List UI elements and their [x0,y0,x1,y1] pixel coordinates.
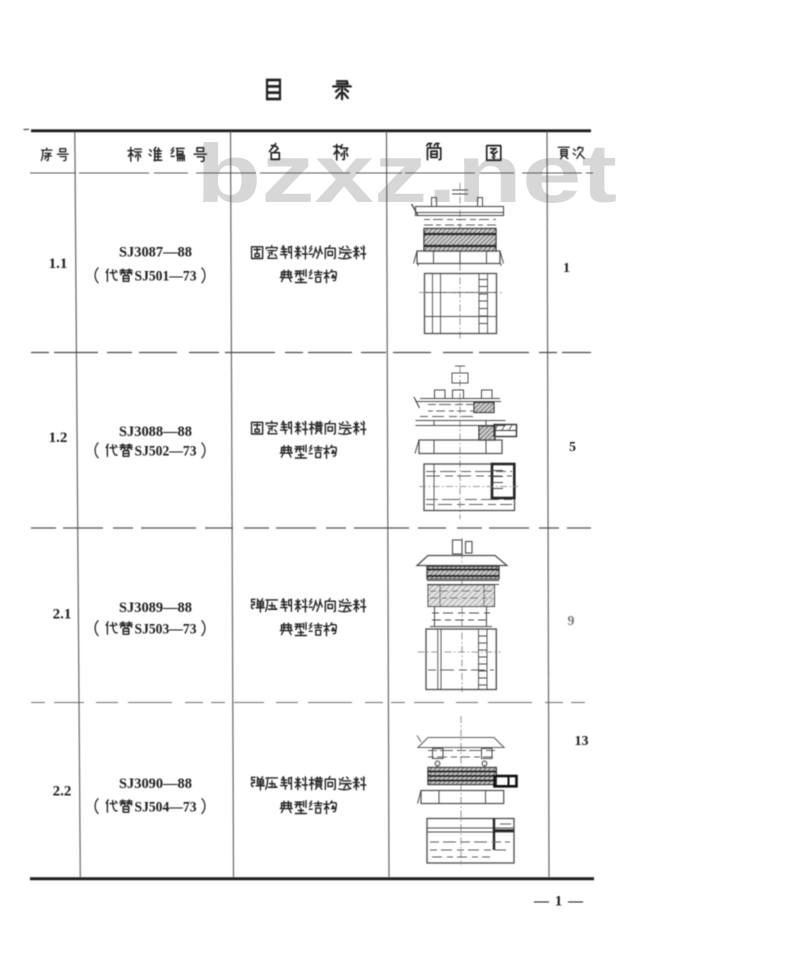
svg-text:SJ501—73: SJ501—73 [135,269,197,285]
svg-text:2.1: 2.1 [53,607,72,623]
svg-text:SJ3090—88: SJ3090—88 [119,776,192,792]
svg-text:1.2: 1.2 [49,430,68,446]
svg-text:SJ503—73: SJ503—73 [135,621,197,637]
svg-text:1: 1 [563,261,570,276]
svg-text:9: 9 [568,614,575,629]
svg-text:1.1: 1.1 [49,256,68,272]
svg-text:SJ3089—88: SJ3089—88 [119,600,192,616]
svg-text:5: 5 [569,440,576,455]
svg-text:2.2: 2.2 [53,784,72,800]
svg-text:SJ502—73: SJ502—73 [135,444,197,460]
svg-text:— 1 —: — 1 — [533,894,584,910]
svg-text:13: 13 [575,734,589,749]
svg-text:SJ3088—88: SJ3088—88 [119,424,192,440]
svg-text:SJ3087—88: SJ3087—88 [119,245,192,261]
svg-text:SJ504—73: SJ504—73 [135,799,197,815]
